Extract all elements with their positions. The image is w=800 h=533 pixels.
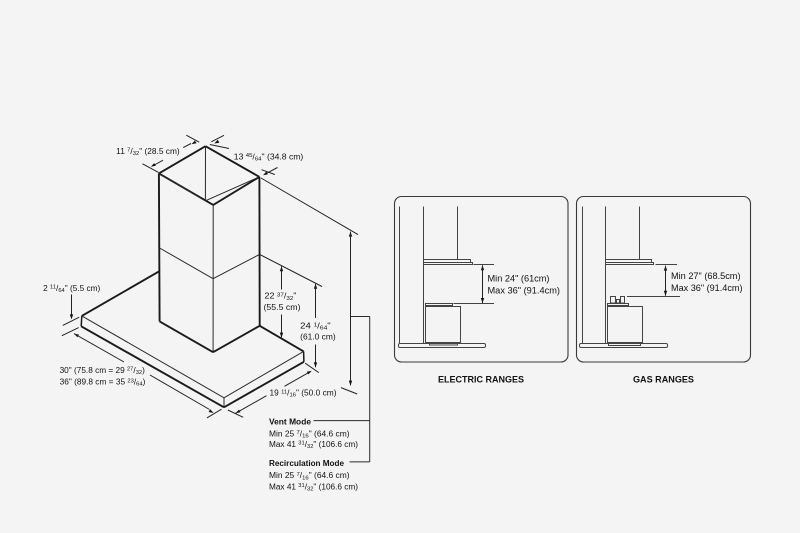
svg-text:Min 25 7/16" (64.6 cm): Min 25 7/16" (64.6 cm): [269, 429, 350, 439]
svg-text:ELECTRIC RANGES: ELECTRIC RANGES: [438, 374, 524, 384]
svg-text:(61.0 cm): (61.0 cm): [300, 332, 336, 341]
svg-text:Max 41 31/32" (106.6 cm): Max 41 31/32" (106.6 cm): [269, 440, 358, 450]
svg-text:Max 36" (91.4cm): Max 36" (91.4cm): [671, 283, 743, 293]
svg-text:Recirculation Mode: Recirculation Mode: [269, 459, 345, 468]
svg-text:Vent Mode: Vent Mode: [269, 418, 312, 427]
svg-text:11 7/32" (28.5 cm): 11 7/32" (28.5 cm): [116, 147, 180, 157]
svg-text:Min 25 7/16" (64.6 cm): Min 25 7/16" (64.6 cm): [269, 471, 350, 481]
svg-text:(55.5 cm): (55.5 cm): [264, 303, 301, 312]
svg-text:Min 27" (68.5cm): Min 27" (68.5cm): [671, 271, 741, 281]
svg-text:13 45/64" (34.8 cm): 13 45/64" (34.8 cm): [234, 152, 304, 162]
svg-text:Max 41 31/32" (106.6 cm): Max 41 31/32" (106.6 cm): [269, 483, 358, 493]
svg-text:19 11/16" (50.0 cm): 19 11/16" (50.0 cm): [270, 389, 337, 399]
svg-text:Min 24" (61cm): Min 24" (61cm): [488, 273, 550, 283]
svg-text:Max 36" (91.4cm): Max 36" (91.4cm): [488, 286, 561, 296]
svg-text:GAS RANGES: GAS RANGES: [633, 375, 694, 385]
